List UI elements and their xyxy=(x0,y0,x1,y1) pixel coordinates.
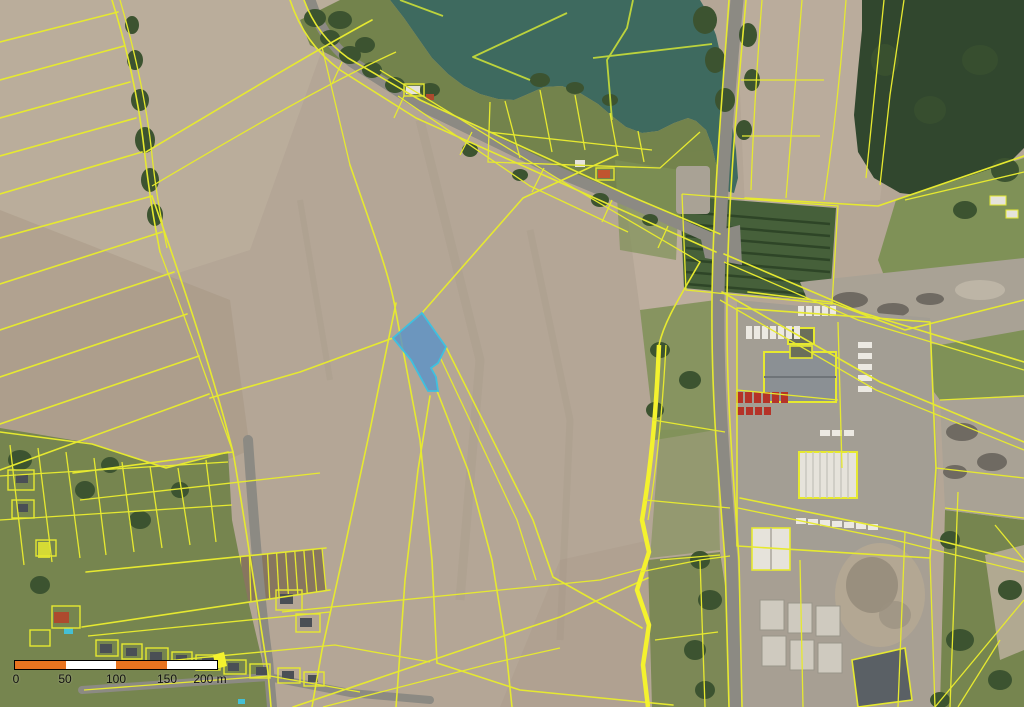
scale-label: 0 xyxy=(13,672,20,686)
truck xyxy=(764,407,771,415)
scale-label: 200 m xyxy=(193,672,226,686)
scale-segment xyxy=(167,661,218,669)
green-strip-south xyxy=(648,552,735,707)
truck xyxy=(806,306,812,316)
truck xyxy=(858,353,872,359)
truck xyxy=(781,392,788,403)
pool xyxy=(64,628,73,634)
scale-segment xyxy=(15,661,66,669)
truck xyxy=(786,326,792,339)
truck xyxy=(754,392,761,403)
map-viewport[interactable]: 0 50 100 150 200 m xyxy=(0,0,1024,707)
truck xyxy=(820,430,830,436)
truck xyxy=(844,522,854,528)
truck xyxy=(754,326,760,339)
truck xyxy=(844,430,854,436)
pool-small xyxy=(238,699,245,704)
truck xyxy=(737,407,744,415)
truck xyxy=(858,342,872,348)
truck xyxy=(798,306,804,316)
scale-segment xyxy=(116,661,167,669)
scale-segment xyxy=(66,661,117,669)
truck xyxy=(832,521,842,527)
truck xyxy=(858,364,872,370)
truck xyxy=(746,407,753,415)
aerial-map xyxy=(0,0,1024,707)
map-scale-bar: 0 50 100 150 200 m xyxy=(14,660,218,686)
scale-label: 150 xyxy=(157,672,177,686)
scale-bar-segments xyxy=(14,660,218,670)
truck xyxy=(746,326,752,339)
truck xyxy=(794,326,800,339)
garden-house-orange xyxy=(598,170,610,178)
scale-label: 100 xyxy=(106,672,126,686)
scale-bar-labels: 0 50 100 150 200 m xyxy=(14,672,218,686)
truck xyxy=(745,392,752,403)
house-red-roof xyxy=(54,612,69,623)
scale-label: 50 xyxy=(58,672,71,686)
truck xyxy=(762,326,768,339)
truck xyxy=(755,407,762,415)
